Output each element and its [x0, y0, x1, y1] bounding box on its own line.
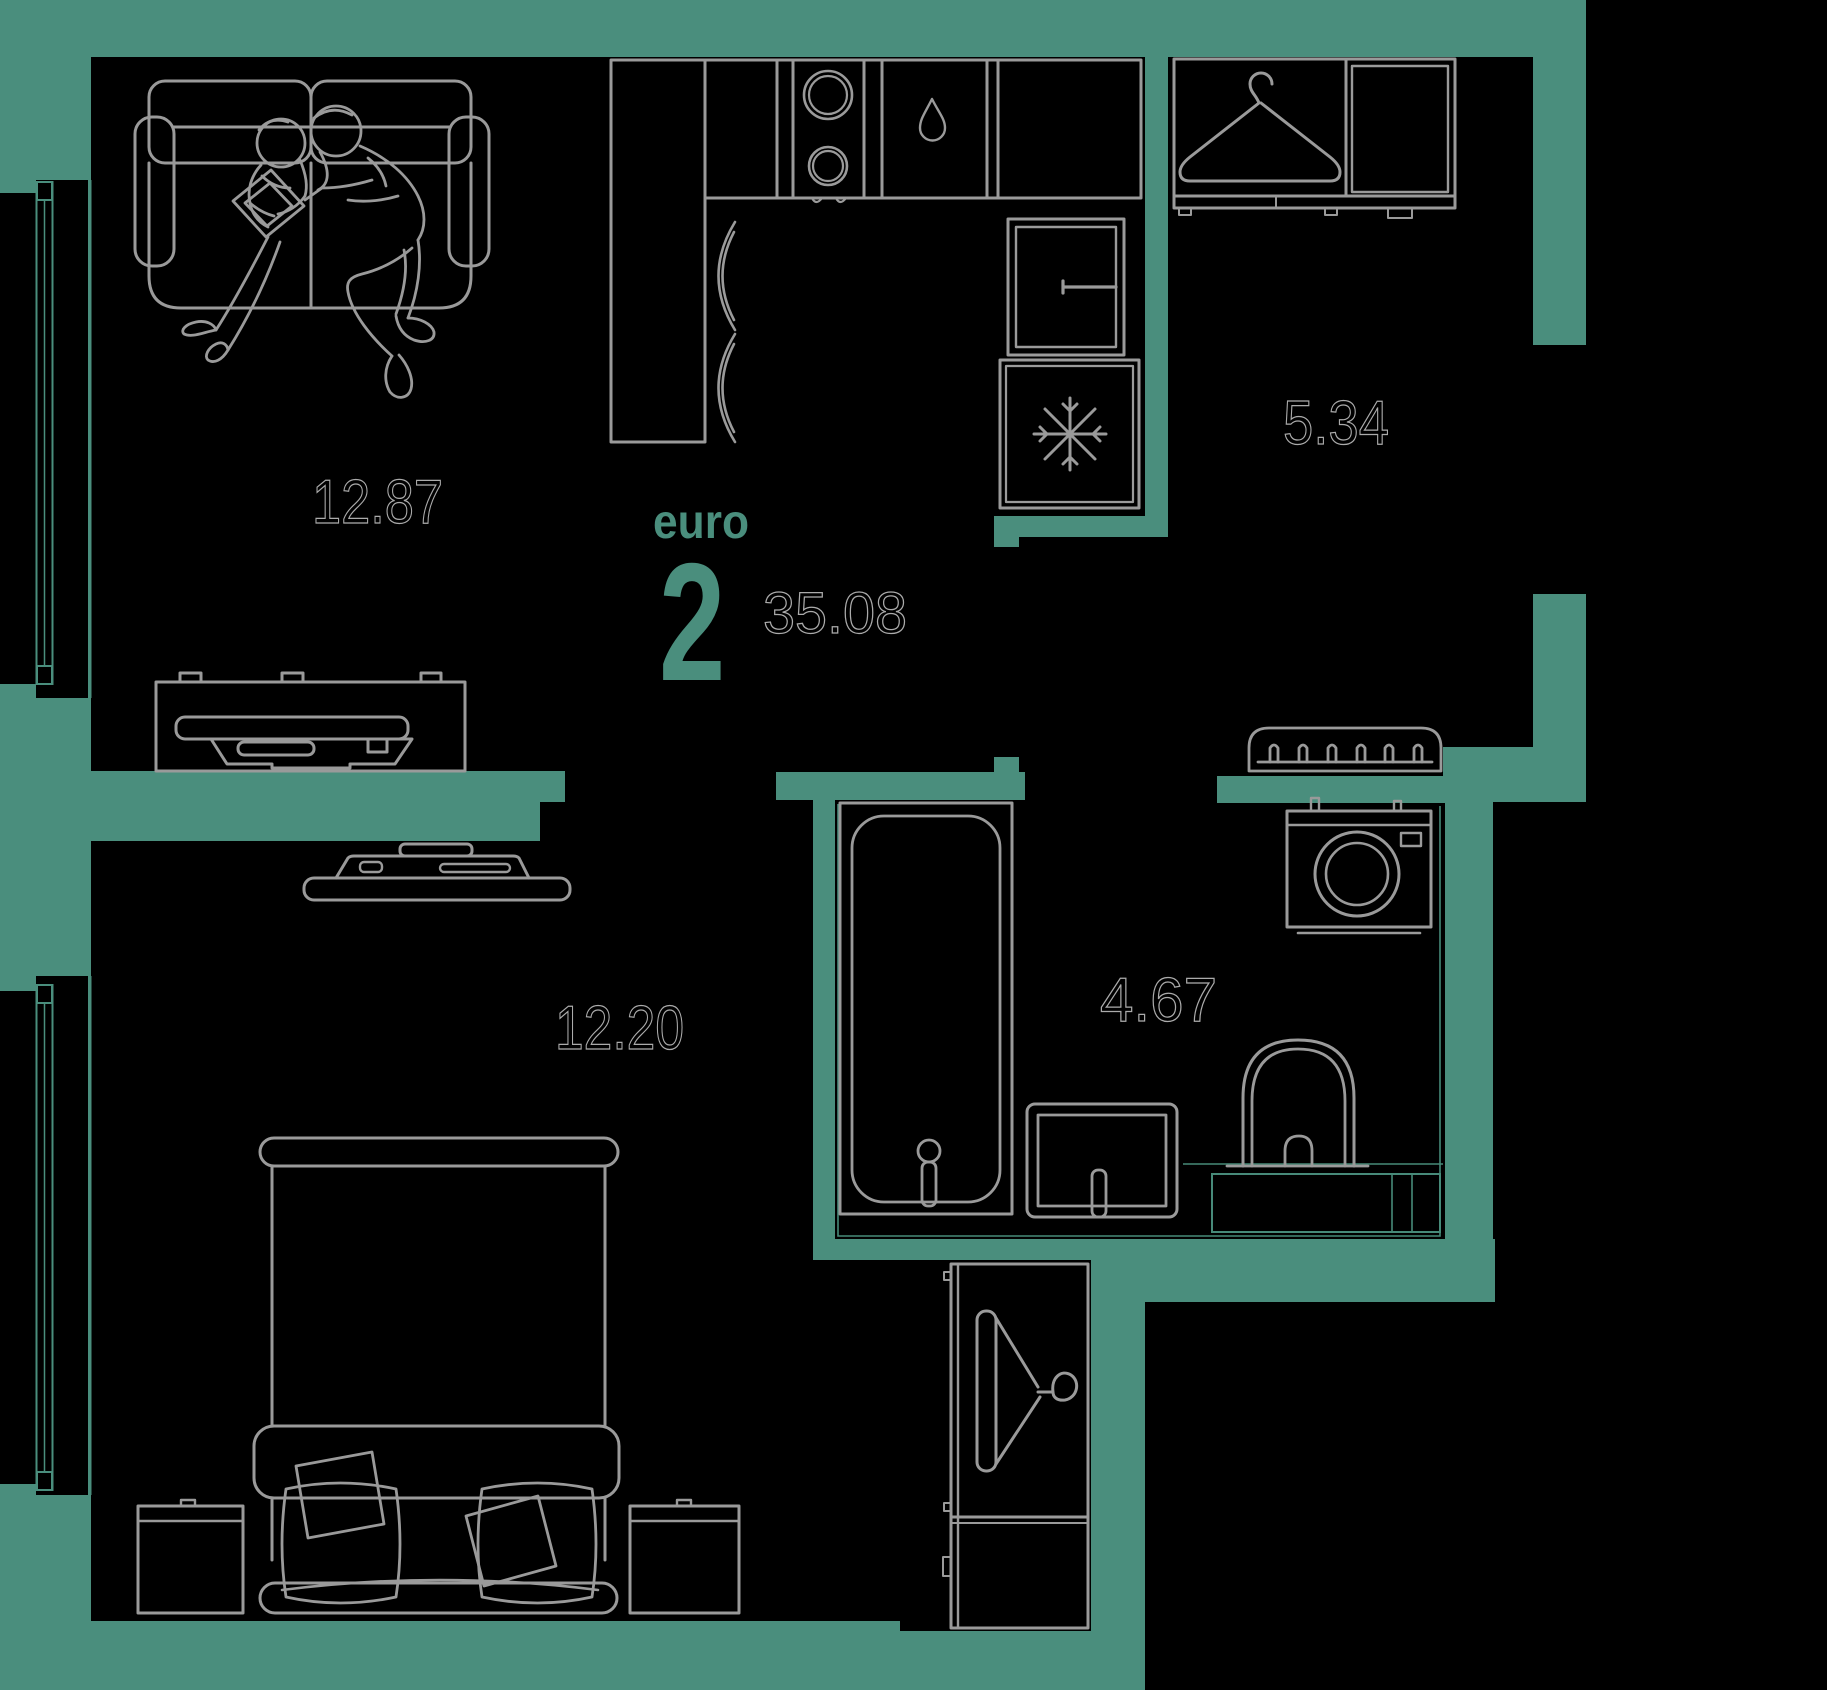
svg-text:2: 2	[659, 528, 725, 716]
svg-text:4.67: 4.67	[1100, 966, 1217, 1035]
svg-text:5.34: 5.34	[1283, 389, 1389, 458]
svg-text:35.08: 35.08	[763, 581, 907, 646]
svg-text:12.20: 12.20	[555, 994, 684, 1063]
svg-text:12.87: 12.87	[312, 468, 443, 537]
